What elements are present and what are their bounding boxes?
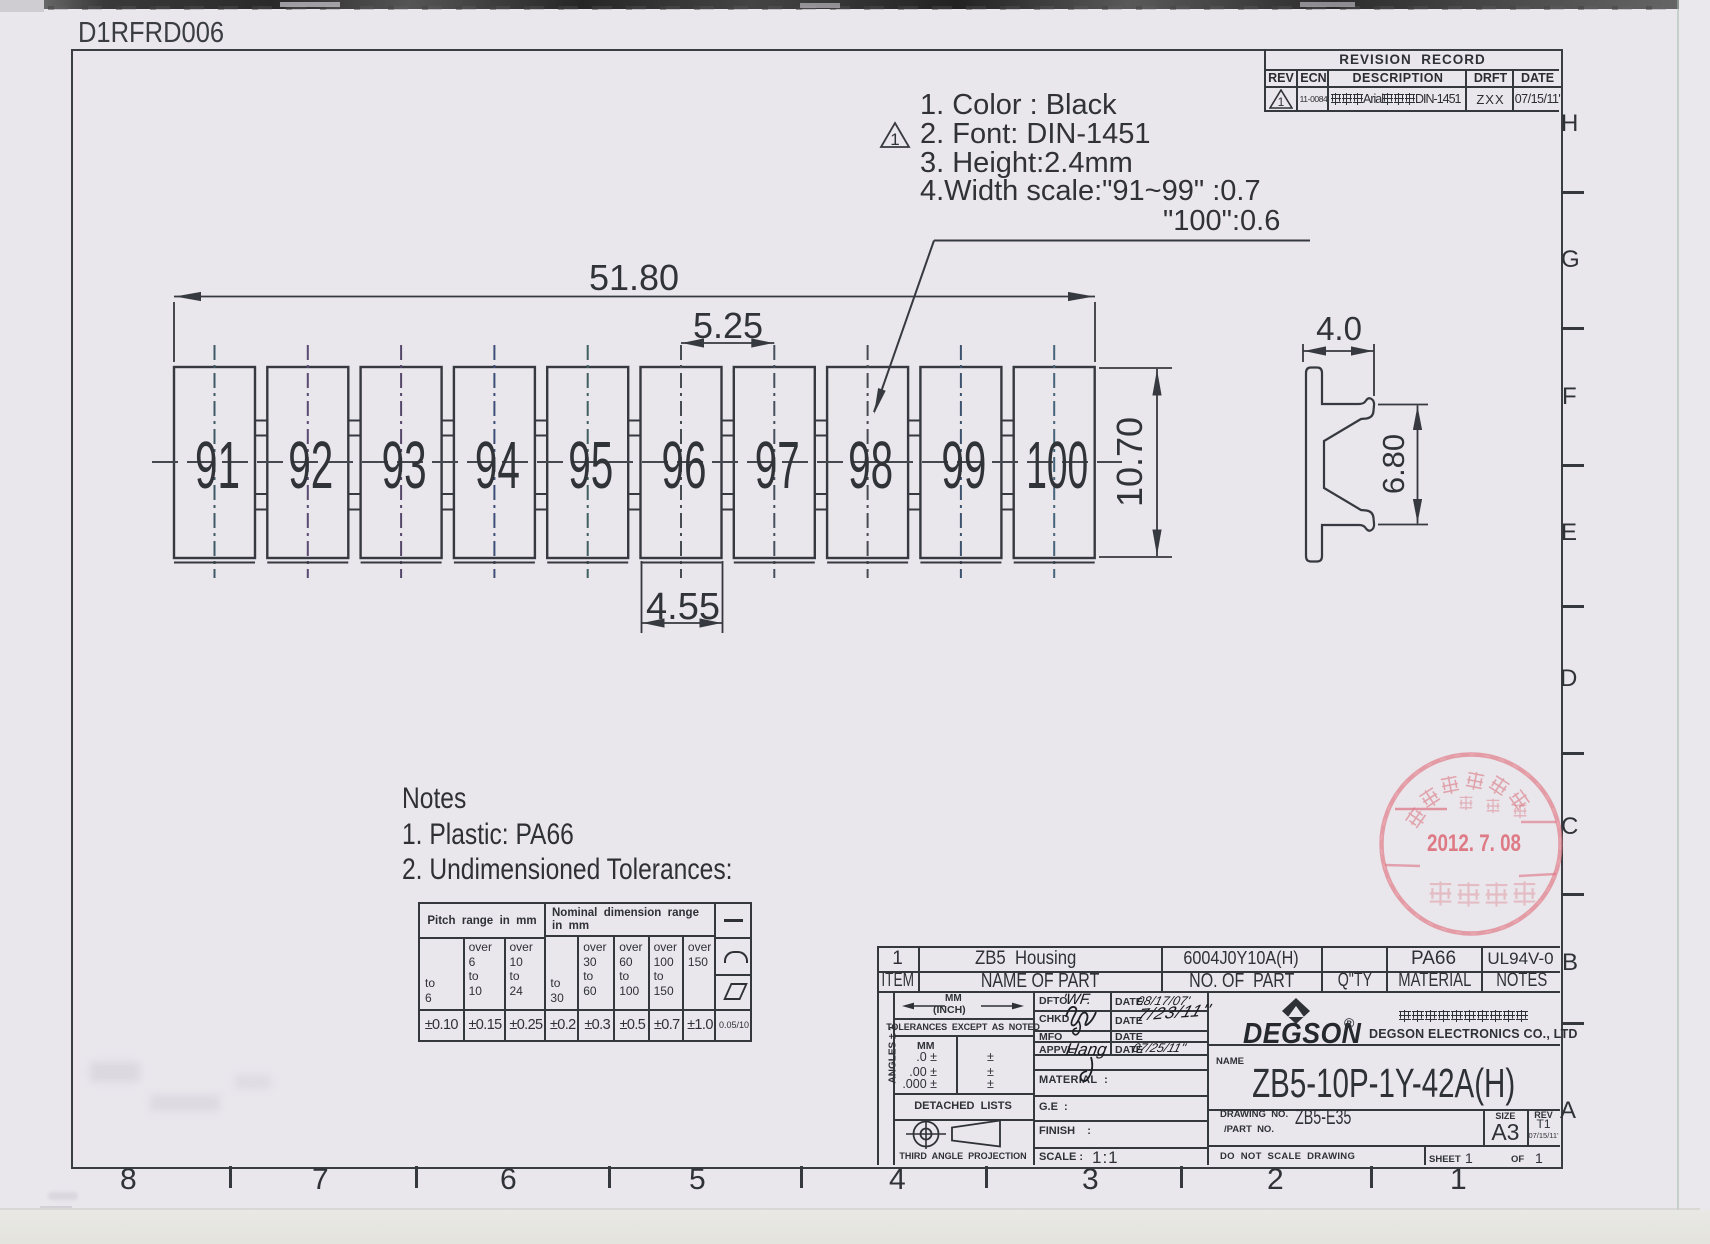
svg-text:93: 93 xyxy=(382,428,427,503)
svg-text:1: 1 xyxy=(890,130,899,149)
svg-text:97: 97 xyxy=(755,428,800,503)
svg-text:2012. 7. 08: 2012. 7. 08 xyxy=(1427,830,1521,857)
svg-text:4.55: 4.55 xyxy=(646,586,720,628)
svg-text:92: 92 xyxy=(288,428,333,503)
svg-text:4.0: 4.0 xyxy=(1316,310,1362,347)
svg-text:98: 98 xyxy=(848,428,893,503)
svg-text:10.70: 10.70 xyxy=(1109,417,1150,507)
svg-text:5.25: 5.25 xyxy=(693,305,763,346)
svg-text:6.80: 6.80 xyxy=(1376,434,1411,494)
svg-text:51.80: 51.80 xyxy=(589,257,679,298)
svg-text:91: 91 xyxy=(195,428,240,503)
svg-text:100: 100 xyxy=(1026,428,1088,503)
svg-text:94: 94 xyxy=(475,428,520,503)
svg-text:96: 96 xyxy=(662,428,707,503)
svg-text:95: 95 xyxy=(568,428,613,503)
svg-text:99: 99 xyxy=(941,428,986,503)
